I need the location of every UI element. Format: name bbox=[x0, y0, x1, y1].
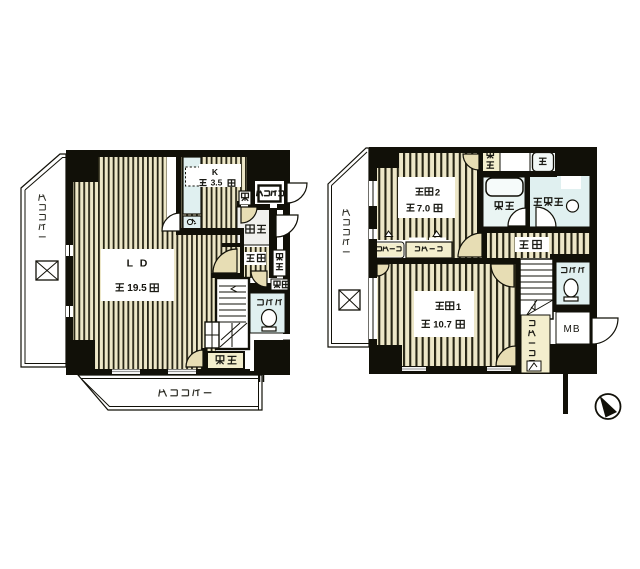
svg-text:L D: L D bbox=[127, 258, 150, 270]
svg-text:3.5: 3.5 bbox=[211, 178, 223, 188]
svg-text:2: 2 bbox=[435, 188, 440, 199]
svg-text:1: 1 bbox=[456, 302, 462, 313]
svg-text:19.5: 19.5 bbox=[127, 283, 147, 294]
svg-text:MB: MB bbox=[564, 324, 581, 335]
svg-text:7.0: 7.0 bbox=[417, 204, 430, 215]
svg-text:10.7: 10.7 bbox=[433, 320, 452, 331]
svg-text:K: K bbox=[212, 167, 219, 177]
